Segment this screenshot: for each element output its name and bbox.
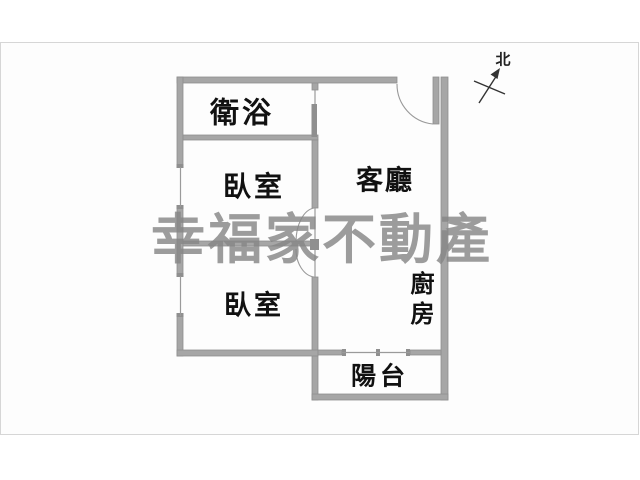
interior-wall-top-jamb: [312, 83, 318, 90]
compass-arrowhead: [491, 68, 501, 79]
north-compass: [474, 68, 505, 103]
bedroom2-bottom-wall: [177, 350, 318, 356]
bathroom-label: 衛浴: [210, 100, 274, 129]
agency-watermark: 幸福家不動產: [151, 213, 493, 267]
kitchen-balcony-wall-right: [410, 350, 441, 355]
entry-door-arc: [397, 84, 433, 124]
bathroom-bottom-wall: [183, 135, 318, 140]
bedroom1-label: 臥室: [223, 173, 285, 201]
bedroom2-label: 臥室: [224, 293, 284, 320]
kitchen-label: 廚房: [407, 271, 431, 331]
interior-wall-upper: [312, 140, 318, 208]
bathroom-door-leaf: [312, 104, 318, 137]
left-wall-upper: [177, 77, 183, 167]
compass-cross-line: [474, 81, 505, 94]
entry-door-leaf: [433, 77, 439, 124]
living-room-label: 客廳: [356, 168, 414, 195]
north-label: 北: [495, 53, 510, 68]
top-wall: [177, 77, 397, 83]
balcony-label: 陽台: [351, 365, 409, 390]
kitchen-balcony-wall-left: [318, 350, 342, 355]
balcony-bottom-wall: [312, 394, 448, 400]
interior-wall-lower: [312, 277, 318, 400]
